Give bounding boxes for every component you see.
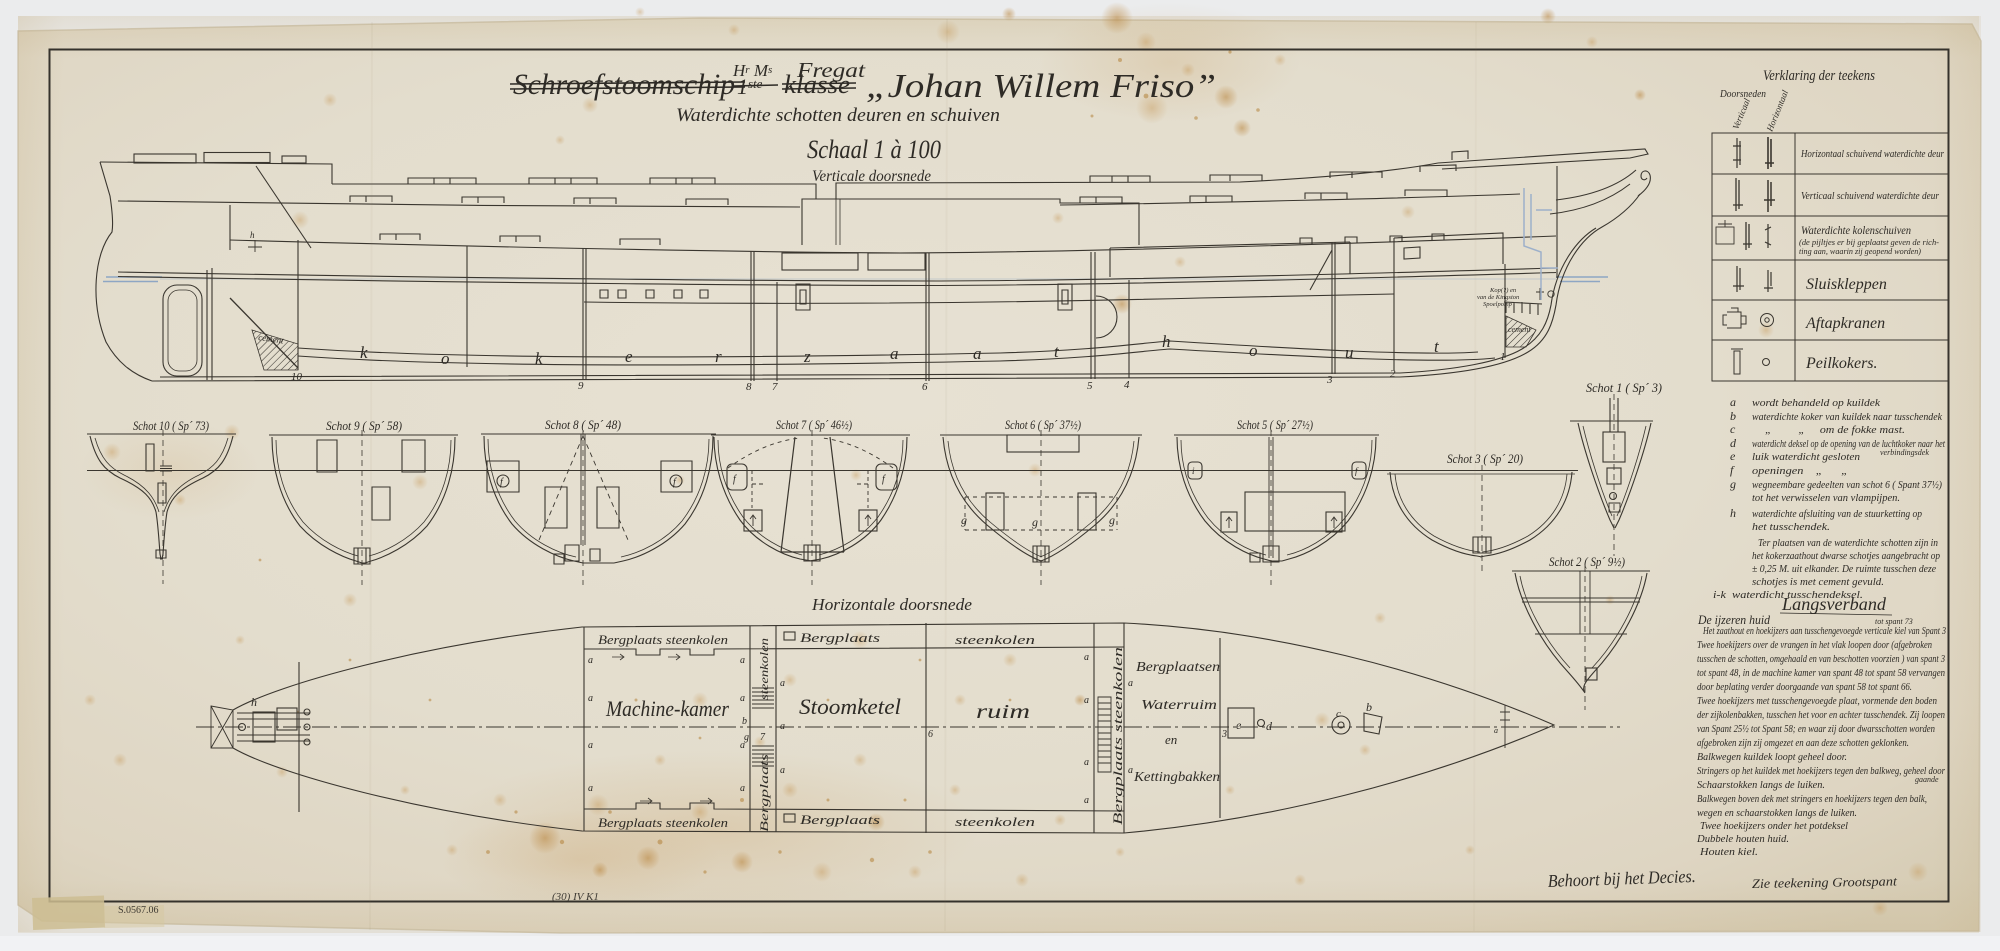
svg-text:Dubbele houten huid.: Dubbele houten huid. [1696, 834, 1789, 845]
svg-text:a: a [588, 740, 593, 751]
svg-text:ting aan, waarin zij geopend w: ting aan, waarin zij geopend worden) [1799, 246, 1921, 256]
svg-text:a: a [740, 783, 745, 794]
svg-text:Twee hoekijzers over de vrange: Twee hoekijzers over de vrangen in het v… [1697, 640, 1932, 651]
svg-text:door beplating verder doorgaan: door beplating verder doorgaande van spa… [1697, 682, 1912, 693]
svg-text:a: a [780, 765, 785, 776]
svg-text:a: a [1084, 795, 1089, 806]
svg-text:1: 1 [1500, 351, 1506, 363]
svg-text:a: a [1730, 395, 1736, 409]
svg-text:b: b [1730, 409, 1736, 423]
svg-text:6: 6 [922, 381, 928, 393]
svg-text:Waterdichte schotten deuren en: Waterdichte schotten deuren en schuiven [676, 105, 1000, 126]
svg-text:g: g [1730, 477, 1736, 491]
svg-text:Schot 3 ( Sp´ 20): Schot 3 ( Sp´ 20) [1447, 451, 1523, 466]
svg-text:Balkwegen kuildek loopt geheel: Balkwegen kuildek loopt geheel door. [1697, 752, 1847, 763]
svg-text:o: o [441, 349, 450, 368]
svg-text:Schot 7 ( Sp´ 46½): Schot 7 ( Sp´ 46½) [776, 417, 852, 432]
svg-text:Kettingbakken: Kettingbakken [1133, 770, 1220, 785]
svg-text:Schot 6 ( Sp´ 37½): Schot 6 ( Sp´ 37½) [1005, 417, 1081, 432]
svg-text:k: k [535, 349, 543, 368]
svg-text:en: en [1165, 732, 1177, 747]
svg-text:Stringers op het kuildek met h: Stringers op het kuildek met hoekijzers … [1697, 766, 1946, 777]
svg-text:Balkwegen boven dek met string: Balkwegen boven dek met stringers en hoe… [1697, 794, 1927, 805]
svg-text:Machine-kamer: Machine-kamer [605, 696, 729, 721]
svg-text:Het zaathout en hoekijzers aan: Het zaathout en hoekijzers aan tusscheng… [1702, 626, 1946, 637]
svg-text:Spoelpomp: Spoelpomp [1483, 301, 1513, 308]
svg-text:Horizontale doorsnede: Horizontale doorsnede [811, 595, 972, 614]
svg-text:o: o [1249, 341, 1258, 360]
svg-text:a: a [588, 693, 593, 704]
svg-text:Bergplaats steenkolen: Bergplaats steenkolen [598, 632, 728, 647]
svg-text:openingen „ „: openingen „ „ [1752, 466, 1848, 477]
svg-text:4: 4 [1124, 379, 1130, 391]
svg-text:Waterdichte kolenschuiven: Waterdichte kolenschuiven [1801, 225, 1911, 237]
svg-text:Schot 2 ( Sp´ 9½): Schot 2 ( Sp´ 9½) [1549, 554, 1625, 569]
svg-text:Schaarstokken langs de luiken.: Schaarstokken langs de luiken. [1697, 780, 1825, 791]
svg-text:der zijkolenbakken, tusschen h: der zijkolenbakken, tusschen het voor en… [1697, 710, 1945, 721]
svg-text:Langsverband: Langsverband [1781, 594, 1887, 614]
svg-text:Twee hoekijzers onder het potd: Twee hoekijzers onder het potdeksel [1700, 821, 1848, 832]
svg-text:waterdichte afsluiting van de: waterdichte afsluiting van de stuurketti… [1752, 509, 1922, 520]
svg-text:Horizontaal schuivend waterdic: Horizontaal schuivend waterdichte deur [1800, 149, 1945, 160]
svg-text:Aftapkranen: Aftapkranen [1805, 315, 1885, 332]
svg-text:6: 6 [928, 729, 933, 740]
svg-text:a: a [1494, 726, 1498, 735]
svg-text:van de Kingston: van de Kingston [1477, 294, 1519, 301]
svg-text:gaande: gaande [1915, 775, 1939, 784]
svg-text:luik waterdicht gesloten: luik waterdicht gesloten [1752, 452, 1860, 463]
svg-text:Kop(?) en: Kop(?) en [1489, 287, 1516, 294]
svg-text:Stoomketel: Stoomketel [799, 694, 901, 719]
svg-text:afgebroken zijn zij omgezet en: afgebroken zijn zij omgezet en aan deze … [1697, 738, 1909, 749]
svg-text:waterdichte koker van kuildek: waterdichte koker van kuildek naar tussc… [1752, 412, 1942, 423]
svg-text:g: g [961, 513, 967, 527]
svg-text:Schot 8 ( Sp´ 48): Schot 8 ( Sp´ 48) [545, 417, 621, 432]
svg-text:wegen en schaarstokken langs d: wegen en schaarstokken langs de luiken. [1697, 808, 1857, 819]
svg-text:wegneembare gedeelten van scho: wegneembare gedeelten van schot 6 ( Span… [1752, 480, 1942, 491]
svg-text:„ „ om de fokke ma: „ „ om de fokke mast. [1765, 425, 1905, 436]
svg-text:a: a [1128, 678, 1133, 689]
svg-text:steenkolen: steenkolen [955, 632, 1035, 647]
svg-text:a: a [1128, 765, 1133, 776]
svg-text:2: 2 [1390, 368, 1396, 380]
svg-text:g: g [744, 732, 749, 743]
svg-text:wordt behandeld op kuildek: wordt behandeld op kuildek [1752, 398, 1880, 409]
svg-text:5: 5 [1087, 380, 1093, 392]
svg-text:tot het verwisselen van vlampi: tot het verwisselen van vlampijpen. [1752, 493, 1900, 504]
svg-text:„Johan Willem Friso”: „Johan Willem Friso” [866, 68, 1216, 105]
svg-text:Peilkokers.: Peilkokers. [1805, 355, 1878, 372]
svg-text:Schaal 1 à 100: Schaal 1 à 100 [807, 135, 941, 164]
svg-text:Zie teekening Grootspant: Zie teekening Grootspant [1752, 873, 1898, 891]
svg-text:steenkolen: steenkolen [757, 638, 771, 700]
svg-text:Bergplaats: Bergplaats [800, 630, 880, 645]
svg-text:7: 7 [772, 381, 778, 393]
svg-text:e: e [625, 347, 633, 366]
svg-text:3: 3 [1221, 729, 1227, 740]
svg-text:cement: cement [1508, 325, 1531, 334]
svg-text:a: a [740, 655, 745, 666]
svg-text:(30) IV K1: (30) IV K1 [552, 891, 599, 903]
svg-text:a: a [780, 721, 785, 732]
svg-text:d: d [1730, 436, 1737, 450]
svg-text:c: c [1336, 708, 1341, 720]
svg-text:Bergplaats: Bergplaats [757, 754, 771, 832]
svg-text:b: b [742, 716, 747, 727]
svg-text:3: 3 [1326, 374, 1333, 386]
svg-text:verbindingsdek: verbindingsdek [1880, 448, 1929, 457]
svg-text:g: g [1109, 513, 1115, 527]
svg-text:tusschen de schotten, omgehaal: tusschen de schotten, omgehaald en van b… [1697, 654, 1945, 665]
svg-text:h: h [251, 695, 257, 709]
svg-text:van Spant 25½ tot Spant 58; en: van Spant 25½ tot Spant 58; en waar zij … [1697, 724, 1935, 735]
svg-text:b: b [1366, 700, 1372, 714]
svg-text:a: a [740, 693, 745, 704]
svg-text:De ijzeren huid: De ijzeren huid [1697, 613, 1771, 627]
svg-text:a: a [1084, 695, 1089, 706]
svg-text:d: d [1266, 719, 1273, 733]
svg-text:Schot 1 ( Sp´ 3): Schot 1 ( Sp´ 3) [1586, 380, 1662, 395]
svg-text:steenkolen: steenkolen [955, 814, 1035, 829]
svg-text:Verticaal schuivend waterdicht: Verticaal schuivend waterdichte deur [1801, 191, 1940, 202]
svg-text:e: e [1236, 718, 1242, 732]
svg-text:Waterruim: Waterruim [1141, 698, 1217, 713]
svg-text:tot spant 48, in de machine ka: tot spant 48, in de machine kamer van sp… [1697, 668, 1945, 679]
svg-text:a: a [588, 655, 593, 666]
svg-text:Schot 5 ( Sp´ 27½): Schot 5 ( Sp´ 27½) [1237, 417, 1313, 432]
svg-text:Houten kiel.: Houten kiel. [1699, 847, 1758, 858]
svg-text:8: 8 [746, 381, 752, 393]
svg-text:Sluiskleppen: Sluiskleppen [1806, 276, 1887, 293]
svg-text:h: h [1730, 506, 1736, 520]
svg-text:± 0,25 M. uit elkander. De rui: ± 0,25 M. uit elkander. De ruimte tussch… [1752, 564, 1936, 575]
svg-text:a: a [588, 783, 593, 794]
svg-text:e: e [1730, 449, 1736, 463]
svg-text:Twee hoekijzers met tusschenge: Twee hoekijzers met tusschengevoegde pla… [1697, 696, 1937, 707]
svg-text:z: z [803, 347, 811, 366]
svg-text:Bergplaats: Bergplaats [800, 812, 880, 827]
svg-text:a: a [1084, 652, 1089, 663]
svg-text:het tusschendek.: het tusschendek. [1752, 522, 1830, 533]
svg-text:schotjes is met cement gevuld.: schotjes is met cement gevuld. [1752, 577, 1884, 588]
svg-text:Verklaring der teekens: Verklaring der teekens [1763, 68, 1875, 84]
svg-text:a: a [890, 344, 899, 363]
svg-text:u: u [1345, 343, 1354, 362]
svg-text:c: c [1730, 422, 1736, 436]
svg-text:ste: ste [748, 76, 763, 91]
svg-text:h: h [250, 230, 255, 240]
svg-text:9: 9 [578, 380, 584, 392]
svg-text:Schot 9 ( Sp´ 58): Schot 9 ( Sp´ 58) [326, 418, 402, 433]
svg-text:tot spant 73: tot spant 73 [1875, 617, 1913, 626]
svg-text:Ter plaatsen van de waterdicht: Ter plaatsen van de waterdichte schotten… [1758, 538, 1938, 549]
svg-text:a: a [780, 678, 785, 689]
svg-text:a: a [973, 344, 982, 363]
svg-text:k: k [360, 343, 368, 362]
svg-text:a: a [1084, 757, 1089, 768]
svg-text:Bergplaatsen: Bergplaatsen [1136, 660, 1220, 675]
svg-text:het kokerzaathout dwarse schot: het kokerzaathout dwarse schotjes aangeb… [1752, 551, 1940, 562]
svg-text:Bergplaats steenkolen: Bergplaats steenkolen [598, 815, 728, 830]
svg-text:Bergplaats steenkolen: Bergplaats steenkolen [1110, 647, 1125, 825]
svg-text:h: h [1162, 332, 1171, 351]
svg-text:g: g [1032, 515, 1038, 529]
svg-text:r: r [715, 347, 722, 366]
svg-text:10: 10 [291, 371, 303, 383]
svg-text:Schroefstoomschip: Schroefstoomschip [513, 68, 735, 101]
svg-text:Schot 10 ( Sp´ 73): Schot 10 ( Sp´ 73) [133, 418, 209, 433]
svg-text:S.0567.06: S.0567.06 [118, 905, 159, 916]
svg-text:ruim: ruim [976, 701, 1030, 723]
